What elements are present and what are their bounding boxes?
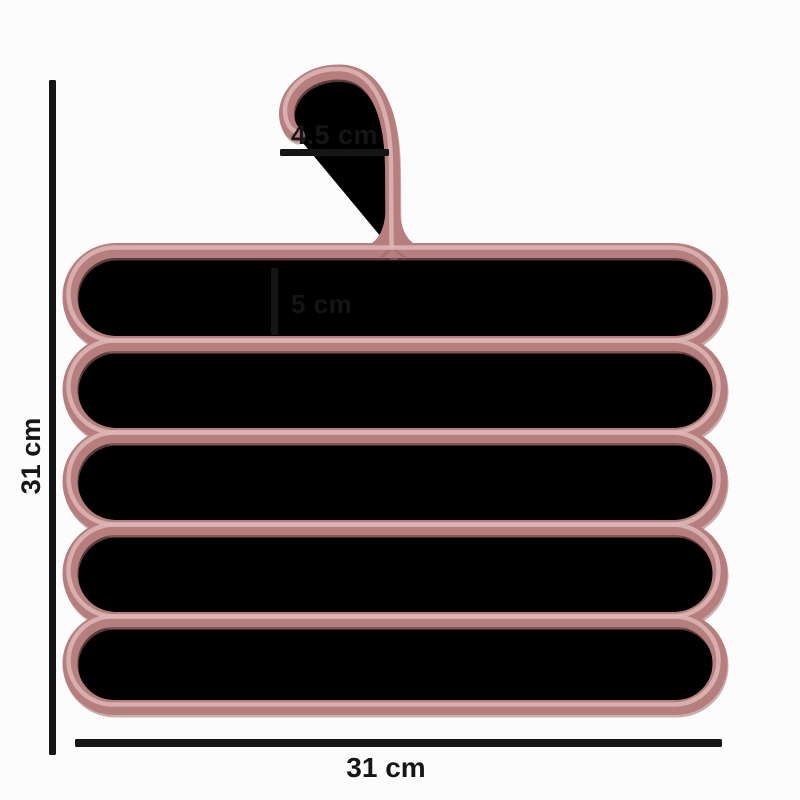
- total-height-dimension-line: [49, 80, 56, 755]
- hook-width-label: 4.5 cm: [291, 122, 378, 149]
- hook-width-dimension-line: [280, 149, 389, 156]
- total-height-label: 31 cm: [16, 401, 46, 511]
- layer-spacing-dimension-line: [271, 268, 278, 335]
- hanger-graphic: [0, 0, 800, 800]
- product-dimension-diagram: 4.5 cm 5 cm 31 cm 31 cm: [0, 0, 800, 800]
- layer-spacing-label: 5 cm: [291, 291, 352, 317]
- total-width-dimension-line: [75, 739, 722, 747]
- total-width-label: 31 cm: [336, 754, 436, 782]
